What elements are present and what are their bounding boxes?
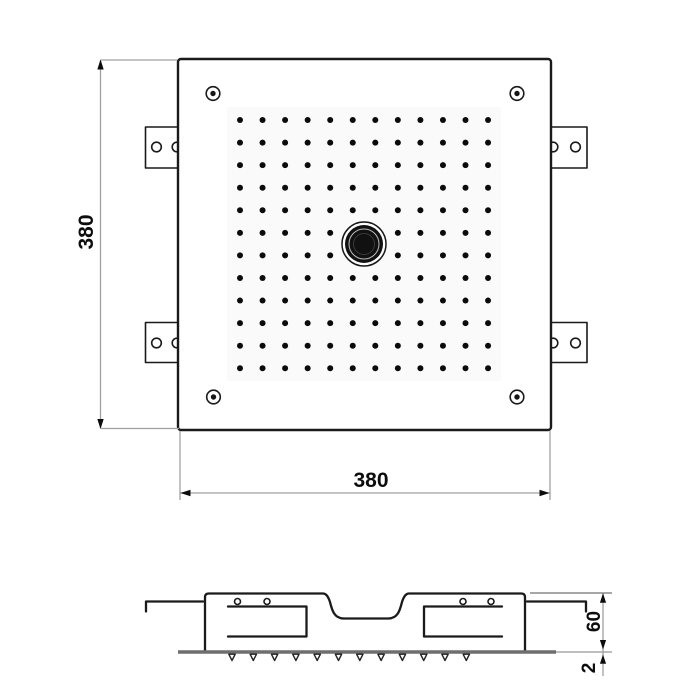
mounting-tab-top-right <box>548 127 587 168</box>
arrow-up-icon <box>97 59 103 69</box>
side-nozzle-tick <box>442 654 448 660</box>
tab-hole <box>571 338 581 348</box>
nozzle-dot <box>282 230 288 236</box>
nozzle-dot <box>395 207 401 213</box>
nozzle-dot <box>372 140 378 146</box>
nozzle-dot <box>237 320 243 326</box>
arrow-up-icon <box>600 593 606 603</box>
nozzle-dot <box>350 365 356 371</box>
nozzle-dot <box>485 162 491 168</box>
housing-outline <box>205 594 525 652</box>
nozzle-dot <box>260 365 266 371</box>
side-height-dimension: 60 2 <box>530 593 612 676</box>
nozzle-dot <box>327 207 333 213</box>
nozzle-dot <box>305 365 311 371</box>
nozzle-dot <box>372 298 378 304</box>
side-nozzle-tick <box>335 654 341 660</box>
nozzle-dot <box>305 275 311 281</box>
nozzle-dot <box>463 162 469 168</box>
nozzle-dot <box>395 140 401 146</box>
arrow-right-icon <box>540 490 550 496</box>
nozzle-dot <box>260 275 266 281</box>
slot-screw-hole <box>235 599 241 605</box>
nozzle-dot <box>305 230 311 236</box>
nozzle-dot <box>417 207 423 213</box>
side-nozzle-tick <box>293 654 299 660</box>
arrow-up-icon <box>600 655 606 664</box>
nozzle-dot <box>463 207 469 213</box>
slot-screw-hole <box>460 599 466 605</box>
nozzle-dot <box>417 320 423 326</box>
nozzle-dot <box>372 162 378 168</box>
nozzle-dot <box>260 185 266 191</box>
nozzle-dot <box>237 207 243 213</box>
nozzle-dot <box>282 298 288 304</box>
nozzle-dot <box>237 117 243 123</box>
nozzle-dot <box>260 298 266 304</box>
side-nozzle-tick <box>229 654 235 660</box>
nozzle-dot <box>237 252 243 258</box>
tab-hole <box>152 142 162 152</box>
side-height-dim-label: 60 <box>584 611 605 632</box>
nozzle-dot <box>327 252 333 258</box>
side-nozzle-tick <box>463 654 469 660</box>
nozzle-dot <box>440 365 446 371</box>
nozzle-dot <box>463 185 469 191</box>
left-slot <box>228 607 307 637</box>
nozzle-dot <box>350 140 356 146</box>
nozzle-dot <box>305 320 311 326</box>
nozzle-dot <box>305 185 311 191</box>
nozzle-dot <box>237 298 243 304</box>
nozzle-dot <box>395 117 401 123</box>
mounting-tab-top-left <box>146 127 182 168</box>
nozzle-dot <box>282 207 288 213</box>
nozzle-dot <box>395 343 401 349</box>
nozzle-dot <box>440 275 446 281</box>
nozzle-dot <box>350 117 356 123</box>
nozzle-dot <box>417 140 423 146</box>
tab-hole <box>571 142 581 152</box>
side-nozzle-tick <box>314 654 320 660</box>
nozzle-dot <box>463 320 469 326</box>
nozzle-dot <box>237 365 243 371</box>
nozzle-dot <box>440 230 446 236</box>
nozzle-dot <box>372 207 378 213</box>
right-slot <box>424 607 502 637</box>
nozzle-dot <box>485 320 491 326</box>
corner-screw-top-left <box>206 87 220 101</box>
width-dimension: 380 <box>180 431 550 500</box>
nozzle-dot <box>485 207 491 213</box>
nozzle-dot <box>440 298 446 304</box>
nozzle-dot <box>260 230 266 236</box>
nozzle-dot <box>485 343 491 349</box>
nozzle-dot <box>372 343 378 349</box>
nozzle-dot <box>237 343 243 349</box>
nozzle-dot <box>395 252 401 258</box>
nozzle-dot <box>260 207 266 213</box>
nozzle-dot <box>237 140 243 146</box>
nozzle-dot <box>463 140 469 146</box>
corner-screw-bottom-right <box>510 390 524 404</box>
side-nozzle-tick <box>399 654 405 660</box>
nozzle-dot <box>327 185 333 191</box>
nozzle-dot <box>395 298 401 304</box>
nozzle-dot <box>327 343 333 349</box>
nozzle-dot <box>260 117 266 123</box>
nozzle-dot <box>282 185 288 191</box>
height-dim-label: 380 <box>75 214 98 249</box>
nozzle-dot <box>282 275 288 281</box>
nozzle-dot <box>485 365 491 371</box>
nozzle-dot <box>440 140 446 146</box>
nozzle-dot <box>327 140 333 146</box>
nozzle-dot <box>463 343 469 349</box>
nozzle-dot <box>463 275 469 281</box>
nozzle-dot <box>327 365 333 371</box>
nozzle-dot <box>417 117 423 123</box>
nozzle-dot <box>282 320 288 326</box>
nozzle-dot <box>327 298 333 304</box>
nozzle-dot <box>417 275 423 281</box>
nozzle-dot <box>372 320 378 326</box>
nozzle-dot <box>350 298 356 304</box>
side-thickness-dim-label: 2 <box>579 663 600 674</box>
nozzle-dot <box>395 230 401 236</box>
side-nozzle-tick <box>271 654 277 660</box>
side-view: 60 2 <box>146 593 612 676</box>
nozzle-dot <box>485 275 491 281</box>
screw-center <box>514 394 519 399</box>
nozzle-dot <box>440 320 446 326</box>
nozzle-dot <box>305 343 311 349</box>
nozzle-dot <box>417 162 423 168</box>
nozzle-dot <box>372 365 378 371</box>
nozzle-dot <box>463 298 469 304</box>
nozzle-dot <box>350 275 356 281</box>
nozzle-dot <box>237 275 243 281</box>
nozzle-dot <box>485 230 491 236</box>
left-hook-bracket <box>146 602 203 612</box>
nozzle-dot <box>463 252 469 258</box>
nozzle-dot <box>463 230 469 236</box>
nozzle-dot <box>485 117 491 123</box>
nozzle-dot <box>372 275 378 281</box>
nozzle-dot <box>282 140 288 146</box>
side-nozzle-tick <box>421 654 427 660</box>
mounting-tab-bottom-right <box>548 323 587 363</box>
arrow-down-icon <box>97 419 103 429</box>
arrow-down-icon <box>600 640 606 650</box>
nozzle-dot <box>440 117 446 123</box>
nozzle-dot <box>282 343 288 349</box>
nozzle-dot <box>485 140 491 146</box>
nozzle-dot <box>327 275 333 281</box>
nozzle-dot <box>372 185 378 191</box>
nozzle-dot <box>260 343 266 349</box>
center-nozzle <box>342 222 386 266</box>
nozzle-dot <box>282 252 288 258</box>
nozzle-dot <box>417 365 423 371</box>
slot-screw-hole <box>488 599 494 605</box>
nozzle-dot <box>327 162 333 168</box>
corner-screw-bottom-left <box>207 390 221 404</box>
nozzle-dot <box>372 117 378 123</box>
right-hook-bracket <box>527 602 586 612</box>
nozzle-dot <box>440 185 446 191</box>
nozzle-dot <box>463 117 469 123</box>
screw-center <box>514 91 519 96</box>
nozzle-dot <box>395 320 401 326</box>
nozzle-dot <box>417 230 423 236</box>
nozzle-dot <box>260 252 266 258</box>
width-dim-label: 380 <box>353 469 388 492</box>
nozzle-dot <box>440 252 446 258</box>
technical-drawing: 380 380 <box>0 0 700 700</box>
nozzle-dot <box>463 365 469 371</box>
nozzle-dot <box>350 207 356 213</box>
nozzle-dot <box>395 275 401 281</box>
nozzle-dot <box>237 162 243 168</box>
nozzle-dot <box>417 343 423 349</box>
nozzle-dot <box>417 185 423 191</box>
nozzle-dot <box>237 185 243 191</box>
slot-screw-hole <box>264 599 270 605</box>
nozzle-dot <box>260 162 266 168</box>
nozzle-dot <box>440 162 446 168</box>
nozzle-dot <box>485 298 491 304</box>
side-nozzle-tick <box>357 654 363 660</box>
side-nozzle-row <box>229 654 470 660</box>
mounting-tab-bottom-left <box>146 323 182 363</box>
nozzle-dot <box>327 230 333 236</box>
center-nozzle-body <box>345 225 383 263</box>
screw-center <box>210 91 215 96</box>
nozzle-dot <box>327 117 333 123</box>
nozzle-dot <box>417 298 423 304</box>
nozzle-dot <box>282 117 288 123</box>
tab-hole <box>152 338 162 348</box>
nozzle-dot <box>305 252 311 258</box>
nozzle-dot <box>305 117 311 123</box>
nozzle-dot <box>395 185 401 191</box>
nozzle-dot <box>282 365 288 371</box>
nozzle-dot <box>305 207 311 213</box>
arrow-left-icon <box>180 490 190 496</box>
side-nozzle-tick <box>378 654 384 660</box>
nozzle-dot <box>305 162 311 168</box>
height-dimension: 380 <box>75 59 179 429</box>
nozzle-dot <box>327 320 333 326</box>
nozzle-dot <box>350 343 356 349</box>
nozzle-dot <box>350 185 356 191</box>
nozzle-dot <box>350 320 356 326</box>
nozzle-dot <box>417 252 423 258</box>
nozzle-dot <box>485 252 491 258</box>
corner-screw-top-right <box>510 87 524 101</box>
side-nozzle-tick <box>250 654 256 660</box>
nozzle-dot <box>305 298 311 304</box>
top-view: 380 380 <box>75 59 587 500</box>
nozzle-dot <box>260 320 266 326</box>
nozzle-dot <box>440 207 446 213</box>
nozzle-dot <box>305 140 311 146</box>
nozzle-dot <box>350 162 356 168</box>
screw-center <box>211 394 216 399</box>
nozzle-dot <box>485 185 491 191</box>
nozzle-dot <box>440 343 446 349</box>
nozzle-dot <box>237 230 243 236</box>
nozzle-dot <box>395 162 401 168</box>
nozzle-dot <box>282 162 288 168</box>
nozzle-dot <box>260 140 266 146</box>
nozzle-dot <box>395 365 401 371</box>
